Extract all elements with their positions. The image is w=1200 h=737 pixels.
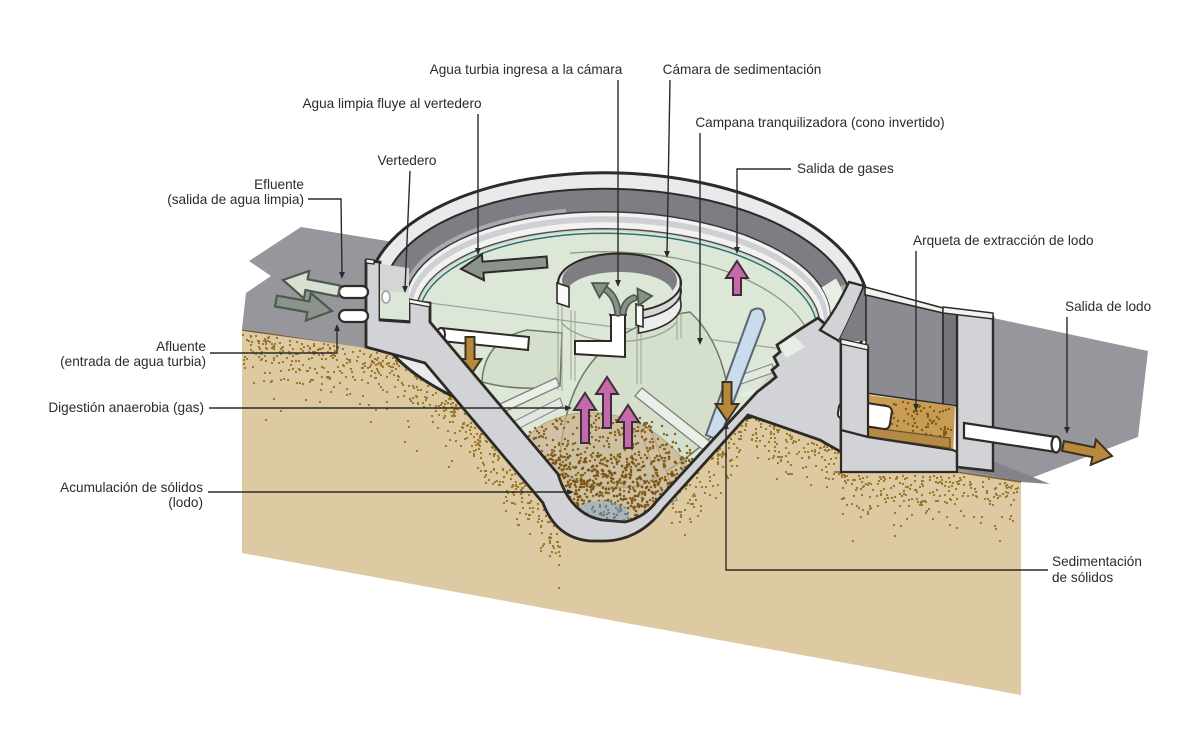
svg-text:Afluente: Afluente (156, 339, 206, 354)
svg-text:Arqueta de extracción de lodo: Arqueta de extracción de lodo (913, 233, 1094, 248)
svg-text:Sedimentación: Sedimentación (1052, 554, 1142, 569)
svg-text:Vertedero: Vertedero (378, 153, 437, 168)
svg-text:Salida de gases: Salida de gases (797, 161, 894, 176)
svg-text:Salida de lodo: Salida de lodo (1065, 299, 1151, 314)
svg-text:Agua turbia ingresa a la cámar: Agua turbia ingresa a la cámara (430, 62, 623, 77)
svg-text:Agua limpia fluye al vertedero: Agua limpia fluye al vertedero (302, 96, 481, 111)
svg-text:(entrada de agua turbia): (entrada de agua turbia) (60, 354, 206, 369)
svg-text:(salida de agua limpia): (salida de agua limpia) (167, 192, 304, 207)
svg-text:Acumulación de sólidos: Acumulación de sólidos (60, 480, 203, 495)
svg-text:(lodo): (lodo) (168, 495, 203, 510)
svg-text:Efluente: Efluente (254, 177, 304, 192)
svg-text:Cámara de sedimentación: Cámara de sedimentación (663, 62, 822, 77)
svg-text:de sólidos: de sólidos (1052, 570, 1113, 585)
svg-text:Campana tranquilizadora (cono: Campana tranquilizadora (cono invertido) (695, 115, 944, 130)
svg-text:Digestión anaerobia (gas): Digestión anaerobia (gas) (48, 400, 204, 415)
